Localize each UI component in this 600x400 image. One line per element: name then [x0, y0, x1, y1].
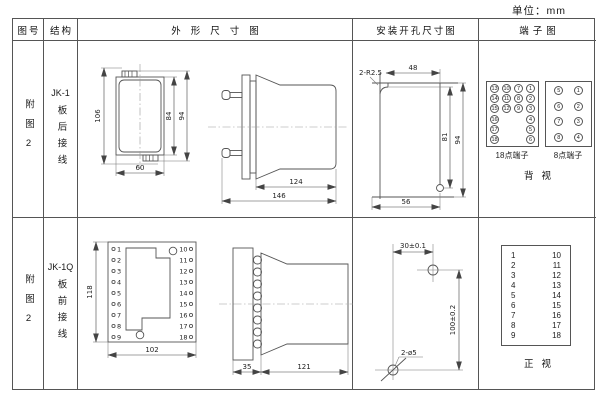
row1-structure: JK-1 板后接线: [44, 41, 78, 218]
header-install: 安装开孔尺寸图: [353, 19, 479, 41]
jk1-front-view-drawing: 106 84 94 60: [86, 61, 201, 186]
terminal-num: 15: [179, 300, 187, 308]
dim-118: 118: [86, 285, 94, 298]
terminal-num: 18: [179, 333, 187, 341]
terminal-num: 10: [179, 245, 187, 253]
terminal-num: 16: [179, 311, 187, 319]
terminal-num: 1: [511, 251, 515, 260]
jk1-install-hole-drawing: 2-R2.5 48 81 94 56: [358, 49, 470, 214]
terminal-num: 5: [511, 291, 515, 300]
terminal-num: 18: [552, 331, 561, 340]
row1-outline-cell: 106 84 94 60: [78, 41, 353, 218]
terminal-block-18: 131071 141182 151293 164 175 186: [486, 81, 539, 147]
dim-102: 102: [145, 346, 158, 354]
wiring-label: 板前接线: [54, 279, 68, 345]
terminal-num: 8: [117, 322, 121, 330]
terminal: 7: [554, 117, 563, 126]
dim-100: 100±0.2: [449, 305, 457, 335]
jk1q-install-hole-drawing: 30±0.1 100±0.2 2-ø5: [361, 230, 476, 385]
terminal-num: 13: [179, 278, 187, 286]
terminal: 10: [502, 84, 511, 93]
drawing-sheet: 单位：mm 图号 结构 外形尺寸图 安装开孔尺寸图 端子图 附图2 JK-1 板…: [0, 0, 600, 400]
terminal-col-right: 10 11 12 13 14 15 16 17 18: [552, 251, 561, 340]
jk1q-side-dimensions: 35 121: [233, 344, 348, 375]
terminal-18-label: 18点端子: [481, 150, 543, 161]
terminal-block-8: 51 62 73 84: [545, 81, 592, 147]
terminal: 11: [502, 94, 511, 103]
row2-outline-cell: 1 2 3 4 5 6 7 8 9 10 11 12 13 14 15 16 1: [78, 218, 353, 389]
row1-install-cell: 2-R2.5 48 81 94 56: [353, 41, 479, 218]
terminal-num: 4: [117, 278, 121, 286]
jk1-front-outline: [116, 64, 164, 169]
jk1-front-dimensions: 106 84 94 60: [94, 68, 190, 176]
terminal-num: 17: [179, 322, 187, 330]
terminal: 4: [574, 133, 583, 142]
unit-label: 单位：mm: [512, 3, 566, 18]
terminal: 7: [514, 84, 523, 93]
jk1q-front-terminals: 1 2 3 4 5 6 7 8 9 10 11 12 13 14 15 16 1: [112, 245, 193, 341]
terminal-num: 13: [552, 281, 561, 290]
back-view-label: 背视: [479, 168, 596, 182]
terminal-num: 9: [117, 333, 121, 341]
jk1q-install-dimensions: 30±0.1 100±0.2 2-ø5: [393, 242, 459, 370]
dim-106: 106: [94, 109, 102, 123]
terminal-num: 16: [552, 311, 561, 320]
dim-30: 30±0.1: [400, 242, 426, 250]
dim-48: 48: [409, 64, 418, 72]
terminal: 17: [490, 125, 499, 134]
terminal-grid-8: 51 62 73 84: [546, 82, 591, 146]
jk1-install-dimensions: 2-R2.5 48 81 94 56: [359, 64, 466, 210]
terminal: 6: [554, 102, 563, 111]
terminal-num: 9: [511, 331, 515, 340]
terminal: 1: [574, 86, 583, 95]
dim-84: 84: [165, 111, 173, 120]
terminal-grid-18: 131071 141182 151293 164 175 186: [487, 82, 538, 146]
row1-terminal-cell: 131071 141182 151293 164 175 186 51 62 7…: [479, 41, 596, 218]
front-view-label: 正视: [479, 356, 596, 370]
terminal-num: 11: [552, 261, 561, 270]
terminal: 4: [526, 115, 535, 124]
dim-35: 35: [243, 363, 252, 371]
terminal: 12: [502, 104, 511, 113]
terminal-num: 15: [552, 301, 561, 310]
terminal: 16: [490, 115, 499, 124]
terminal: 13: [490, 84, 499, 93]
jk1-side-view-drawing: 124 146: [196, 61, 356, 206]
terminal-num: 1: [117, 245, 121, 253]
terminal: 9: [514, 104, 523, 113]
dim-56: 56: [402, 198, 411, 206]
model-label: JK-1Q: [48, 262, 74, 272]
terminal: 5: [554, 86, 563, 95]
terminal: 8: [514, 94, 523, 103]
terminal-num: 2: [511, 261, 515, 270]
row2-install-cell: 30±0.1 100±0.2 2-ø5: [353, 218, 479, 389]
dim-94b: 94: [454, 135, 462, 144]
dim-60: 60: [136, 164, 145, 172]
terminal-num: 11: [179, 256, 187, 264]
header-structure: 结构: [44, 19, 78, 41]
terminal-box-front: 1 2 3 4 5 6 7 8 9 10 11 12 13 14 15: [501, 245, 571, 346]
radius-label: 2-R2.5: [359, 69, 382, 77]
terminal: 18: [490, 135, 499, 144]
dim-94: 94: [178, 111, 186, 120]
jk1-side-dimensions: 124 146: [222, 158, 336, 204]
dimension-table: 图号 结构 外形尺寸图 安装开孔尺寸图 端子图 附图2 JK-1 板后接线: [12, 18, 595, 390]
terminal-8-label: 8点端子: [543, 150, 593, 161]
terminal-num: 7: [117, 311, 121, 319]
terminal-num: 5: [117, 289, 121, 297]
terminal: 5: [526, 125, 535, 134]
header-outline: 外形尺寸图: [78, 19, 353, 41]
terminal-num: 12: [179, 267, 187, 275]
terminal-num: 14: [552, 291, 561, 300]
terminal-num: 2: [117, 256, 121, 264]
terminal: 3: [574, 117, 583, 126]
terminal-num: 10: [552, 251, 561, 260]
terminal-num: 12: [552, 271, 561, 280]
terminal-num: 7: [511, 311, 515, 320]
terminal-num: 4: [511, 281, 515, 290]
terminal: 2: [574, 102, 583, 111]
terminal-num: 3: [117, 267, 121, 275]
terminal: 3: [526, 104, 535, 113]
dim-121: 121: [297, 363, 310, 371]
terminal-num: 17: [552, 321, 561, 330]
wiring-label: 板后接线: [54, 105, 68, 171]
model-label: JK-1: [51, 88, 70, 98]
jk1q-side-view-drawing: 35 121: [203, 238, 355, 383]
terminal: 15: [490, 104, 499, 113]
terminal: 8: [554, 133, 563, 142]
header-terminal: 端子图: [479, 19, 596, 41]
holes-label: 2-ø5: [401, 349, 417, 357]
row2-structure: JK-1Q 板前接线: [44, 218, 78, 389]
terminal: 6: [526, 135, 535, 144]
row2-fig-no: 附图2: [13, 218, 44, 389]
terminal-num: 14: [179, 289, 187, 297]
terminal-num: 6: [511, 301, 515, 310]
row1-fig-no: 附图2: [13, 41, 44, 218]
terminal-num: 3: [511, 271, 515, 280]
header-fig-no: 图号: [13, 19, 44, 41]
terminal-num: 8: [511, 321, 515, 330]
terminal: 1: [526, 84, 535, 93]
jk1q-side-outline: [219, 248, 353, 360]
dim-124: 124: [289, 178, 303, 186]
jk1-side-outline: [208, 75, 348, 179]
terminal: 2: [526, 94, 535, 103]
jk1q-front-view-drawing: 1 2 3 4 5 6 7 8 9 10 11 12 13 14 15 16 1: [80, 234, 208, 366]
dim-146: 146: [272, 192, 286, 200]
terminal-num: 6: [117, 300, 121, 308]
terminal-col-left: 1 2 3 4 5 6 7 8 9: [511, 251, 515, 340]
dim-81: 81: [441, 133, 449, 142]
row2-terminal-cell: 1 2 3 4 5 6 7 8 9 10 11 12 13 14 15: [479, 218, 596, 389]
terminal: 14: [490, 94, 499, 103]
